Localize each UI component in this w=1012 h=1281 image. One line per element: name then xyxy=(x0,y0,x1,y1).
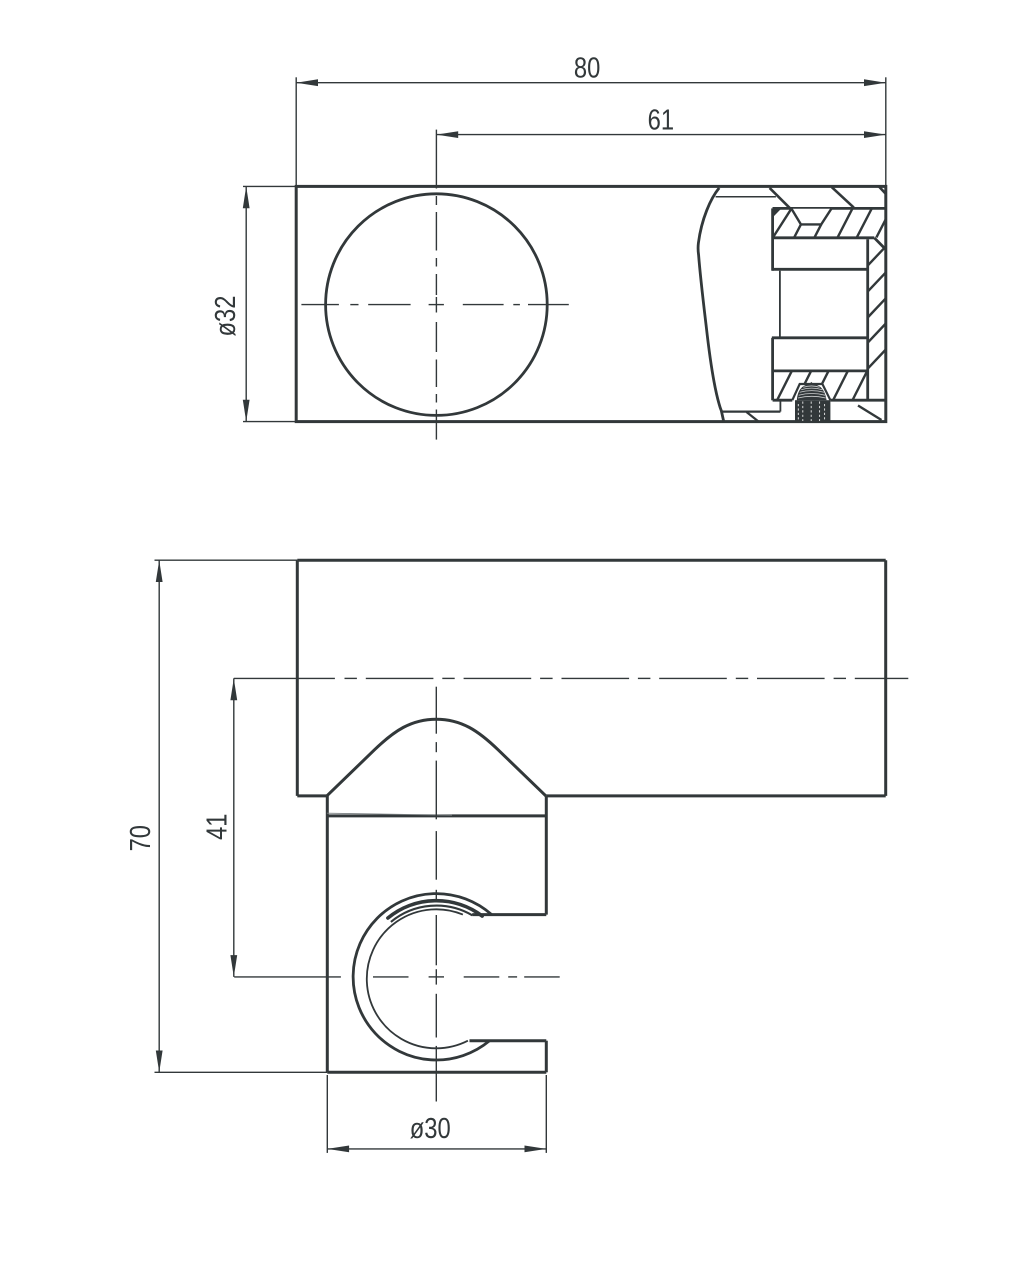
svg-text:70: 70 xyxy=(124,825,157,851)
svg-text:ø30: ø30 xyxy=(410,1112,451,1145)
svg-text:61: 61 xyxy=(648,103,674,136)
svg-text:41: 41 xyxy=(200,813,233,839)
svg-text:ø32: ø32 xyxy=(209,296,242,337)
svg-text:80: 80 xyxy=(574,51,600,84)
